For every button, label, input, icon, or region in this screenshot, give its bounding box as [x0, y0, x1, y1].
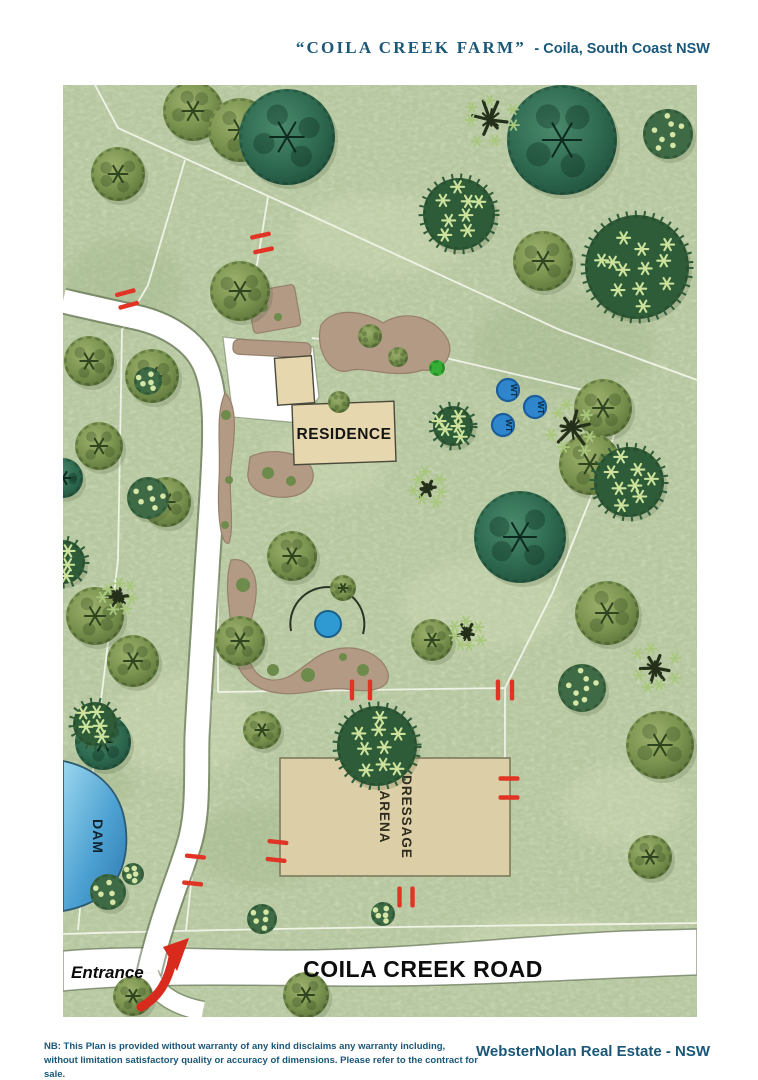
entrance-label: Entrance — [71, 963, 144, 982]
agency-brand: WebsterNolan Real Estate - NSW — [476, 1043, 710, 1060]
dot-tree — [134, 367, 162, 395]
water-tank: WT — [492, 414, 514, 436]
property-site-plan: DAM DRESSAGE ARENA RESIDENCE — [63, 85, 697, 1017]
disclaimer: NB: This Plan is provided without warran… — [44, 1040, 484, 1080]
dam-label: DAM — [90, 819, 106, 854]
dot-tree — [247, 904, 277, 934]
olive-tree — [358, 324, 382, 348]
site-plan-page: { "header": { "farm_name": "“COILA CREEK… — [0, 0, 758, 1080]
olive-tree — [328, 391, 350, 413]
page-title: “COILA CREEK FARM” - Coila, South Coast … — [296, 38, 710, 58]
dressage-arena-label-line1: DRESSAGE — [399, 775, 414, 859]
water-tank-label: WT — [504, 419, 514, 433]
water-tank-label: WT — [536, 401, 546, 415]
olive-tree — [388, 347, 408, 367]
farm-name: “COILA CREEK FARM” — [296, 38, 526, 57]
shrub-tree — [429, 360, 445, 376]
dressage-arena-label-line2: ARENA — [377, 790, 392, 843]
olive-tree — [330, 575, 356, 601]
water-tank: WT — [497, 379, 519, 401]
farm-location: - Coila, South Coast NSW — [534, 41, 710, 57]
residence-label: RESIDENCE — [297, 426, 392, 443]
disclaimer-line1: NB: This Plan is provided without warran… — [44, 1040, 484, 1054]
road-label: COILA CREEK ROAD — [303, 956, 543, 982]
dot-tree — [371, 902, 395, 926]
water-tank-label: WT — [509, 384, 519, 398]
dot-tree — [122, 863, 144, 885]
water-tank: WT — [524, 396, 546, 418]
disclaimer-line2: without limitation satisfactory quality … — [44, 1054, 484, 1080]
